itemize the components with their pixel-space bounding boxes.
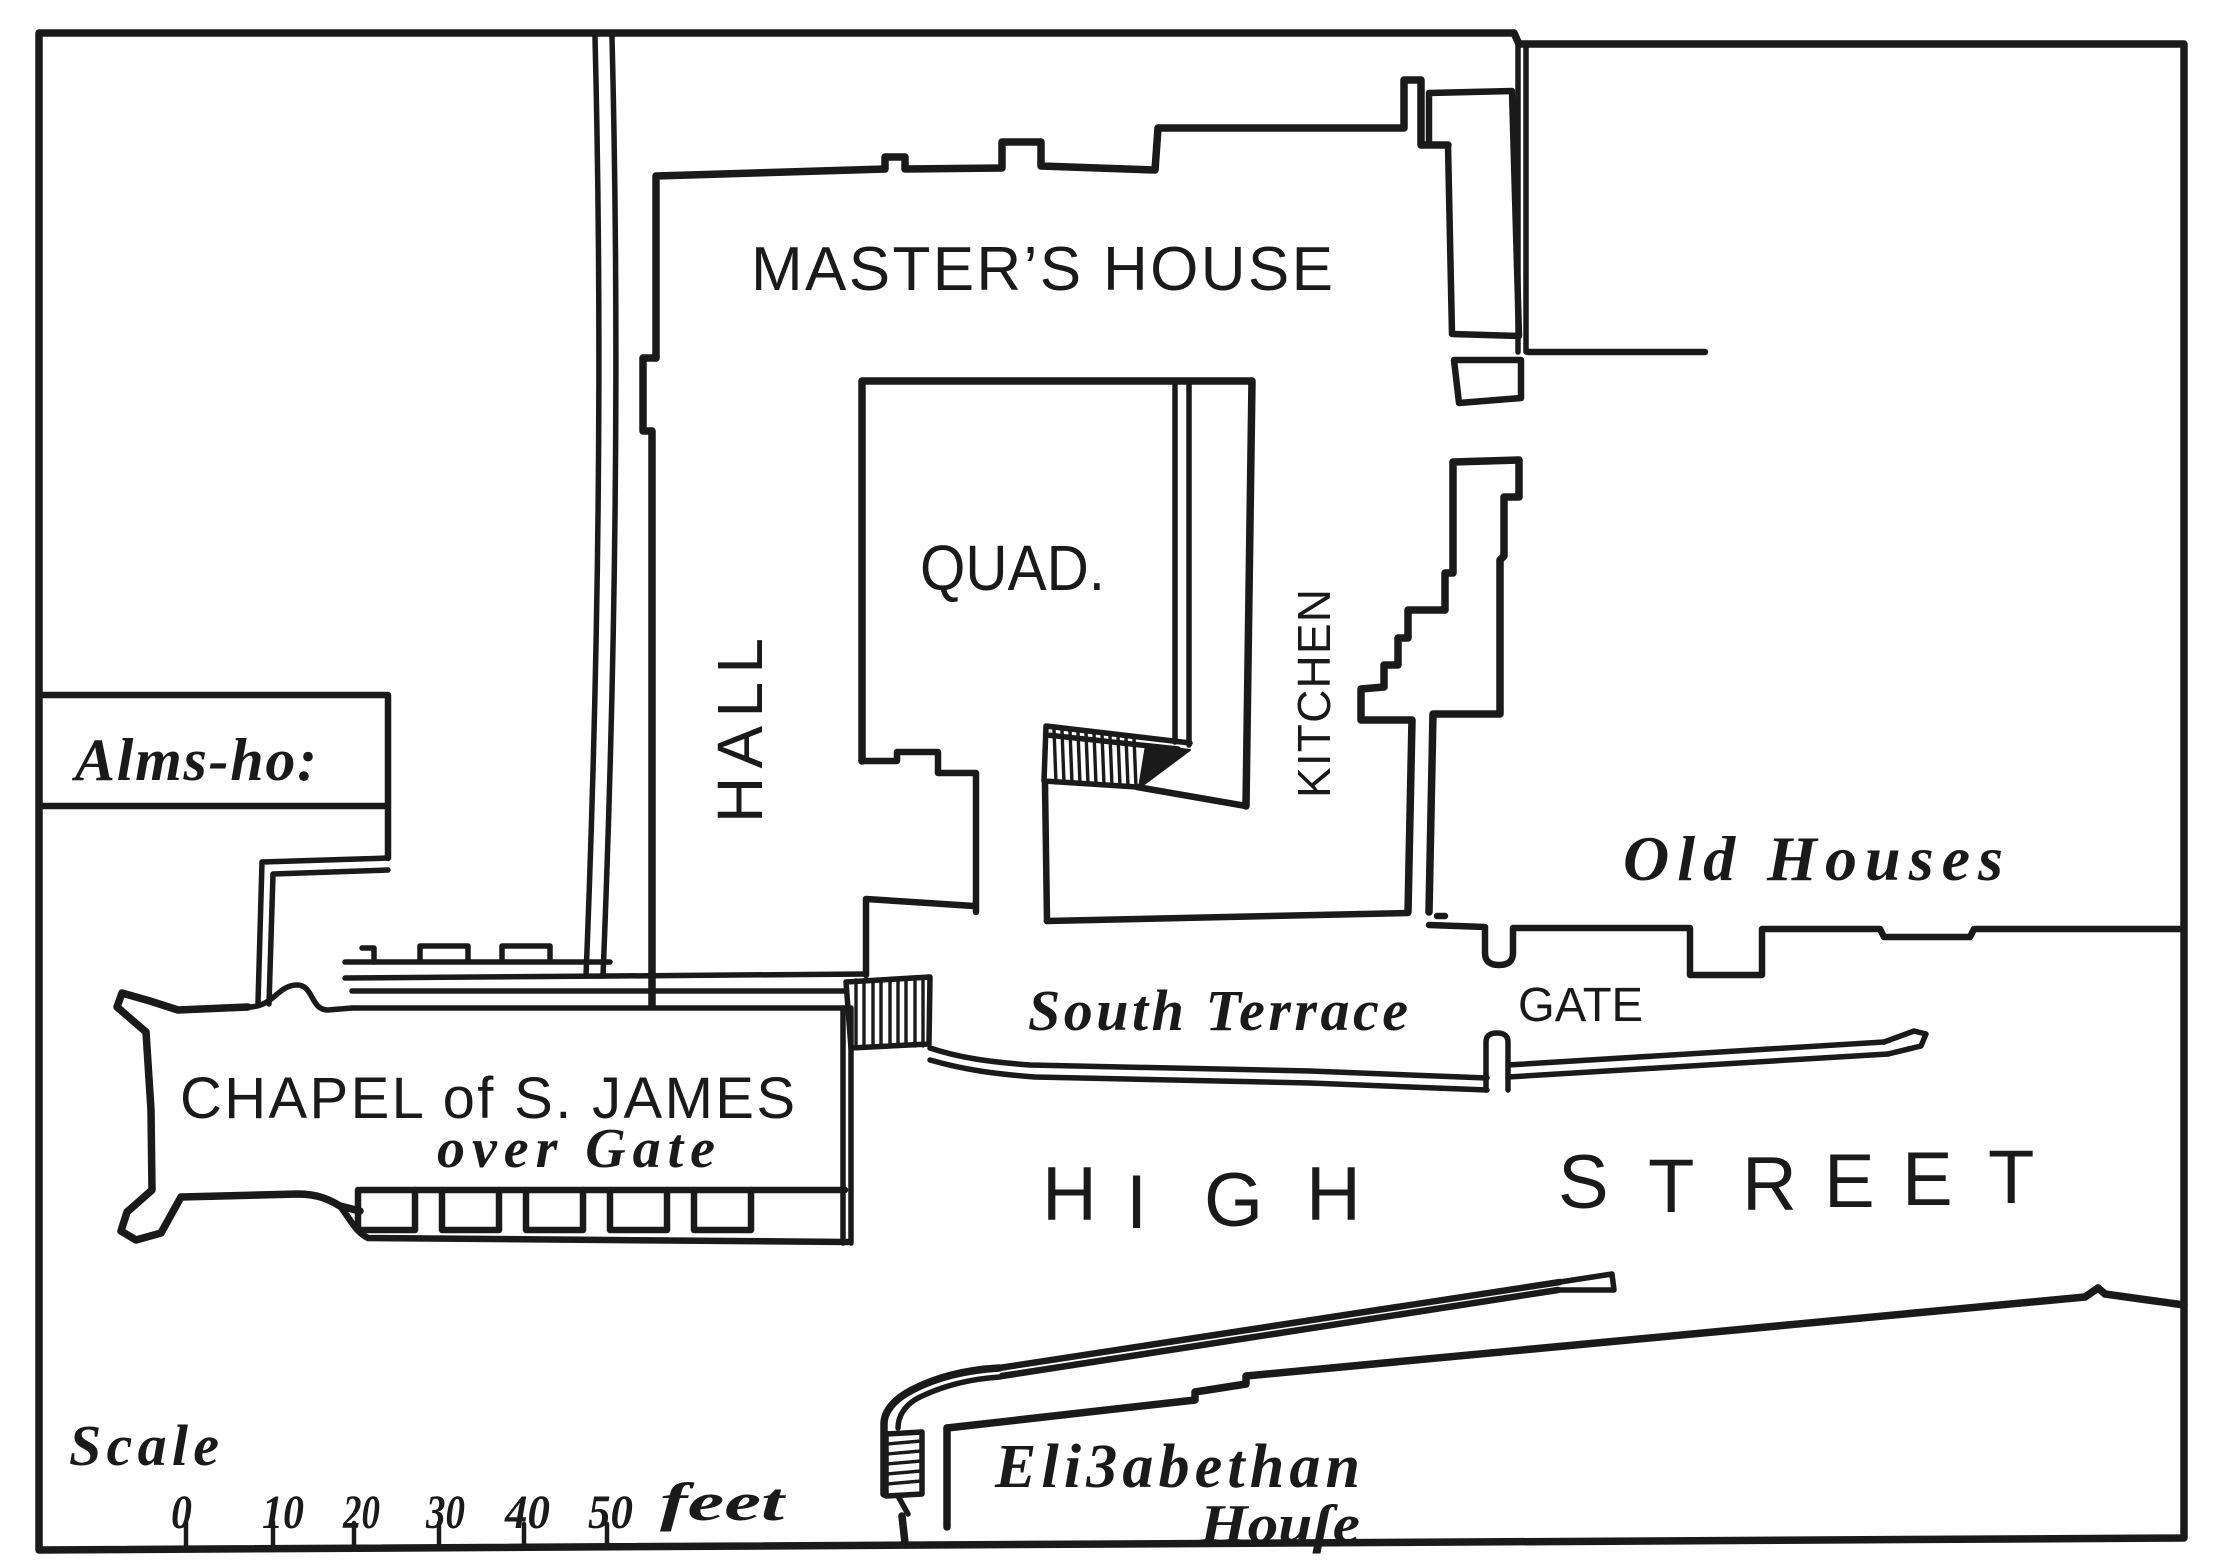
svg-text:R: R [1742,1142,1797,1227]
svg-text:Houſe: Houſe [1199,1494,1360,1554]
svg-text:QUAD.: QUAD. [920,532,1105,604]
svg-text:H: H [1306,1152,1361,1237]
svg-text:Scale: Scale [69,1413,219,1478]
svg-text:G: G [1204,1158,1263,1243]
svg-text:GATE: GATE [1518,979,1643,1032]
svg-text:H: H [1042,1152,1097,1237]
svg-text:20: 20 [342,1486,380,1539]
svg-text:I: I [1126,1160,1147,1245]
svg-text:40: 40 [504,1486,550,1539]
svg-text:HALL: HALL [704,638,776,823]
svg-text:E: E [1902,1137,1953,1222]
svg-text:30: 30 [425,1486,465,1539]
svg-text:E: E [1824,1139,1875,1224]
svg-text:Eli3abethan: Eli3abethan [994,1433,1360,1501]
svg-text:Alms-ho:: Alms-ho: [71,727,317,793]
svg-text:0: 0 [171,1486,192,1539]
svg-text:T: T [1648,1144,1694,1229]
svg-text:10: 10 [262,1486,304,1539]
svg-text:KITCHEN: KITCHEN [1288,589,1340,798]
svg-text:T: T [1988,1135,2034,1220]
svg-text:over Gate: over Gate [437,1118,715,1180]
svg-text:S: S [1558,1140,1609,1225]
svg-text:Old Houses: Old Houses [1623,823,2003,894]
svg-text:feet: feet [660,1472,787,1532]
svg-text:50: 50 [588,1486,633,1539]
